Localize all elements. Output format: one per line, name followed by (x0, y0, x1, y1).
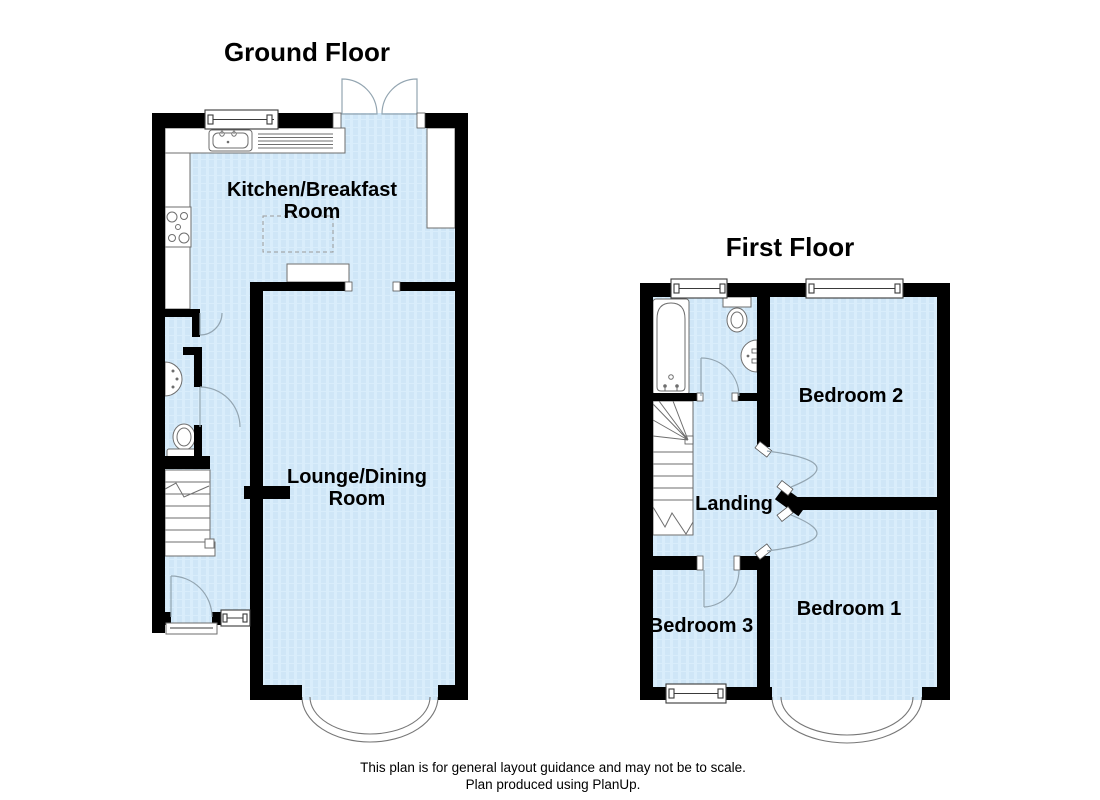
ground-floor-title: Ground Floor (224, 37, 390, 67)
first-floor-title: First Floor (726, 232, 855, 262)
door-jamb (697, 556, 703, 570)
door-jamb (333, 113, 341, 128)
window-icon (205, 110, 278, 129)
kitchen-sink-icon (209, 129, 252, 151)
stairs-icon (653, 401, 693, 535)
floor-plan-canvas: Ground Floor Kitchen/Breakfast Room Loun… (0, 0, 1100, 800)
ground-floor-plan: Ground Floor Kitchen/Breakfast Room Loun… (152, 37, 468, 742)
window-icon (806, 279, 903, 298)
bay-window-icon (302, 697, 438, 742)
bedroom3-label: Bedroom 3 (649, 615, 753, 637)
hob-icon (165, 207, 191, 247)
chimney-breast (287, 264, 349, 282)
door-jamb (697, 393, 703, 401)
kitchen-worktop-right (427, 128, 455, 228)
door-jamb (732, 393, 738, 401)
window-icon (671, 279, 727, 298)
bedroom1-label: Bedroom 1 (797, 598, 901, 620)
door-jamb (417, 113, 425, 128)
window-icon (221, 610, 250, 626)
landing-label: Landing (695, 493, 773, 515)
door-jamb (345, 282, 352, 291)
floor-plan-page: Ground Floor Kitchen/Breakfast Room Loun… (0, 0, 1100, 800)
lounge-label-line2: Room (329, 488, 386, 510)
bath-icon (653, 299, 689, 395)
bay-window-icon (772, 697, 922, 743)
first-floor-plan: First Floor Bedroom 2 Landing Bedroom 3 … (640, 232, 950, 743)
door-jamb (734, 556, 740, 570)
disclaimer-line1: This plan is for general layout guidance… (360, 760, 746, 775)
bedroom2-label: Bedroom 2 (799, 385, 903, 407)
disclaimer-line2: Plan produced using PlanUp. (466, 777, 641, 792)
lounge-label-line1: Lounge/Dining (287, 466, 427, 488)
kitchen-label-line2: Room (284, 201, 341, 223)
door-jamb (393, 282, 400, 291)
window-icon (666, 684, 726, 703)
kitchen-label-line1: Kitchen/Breakfast (227, 179, 397, 201)
french-doors-icon (342, 79, 417, 114)
